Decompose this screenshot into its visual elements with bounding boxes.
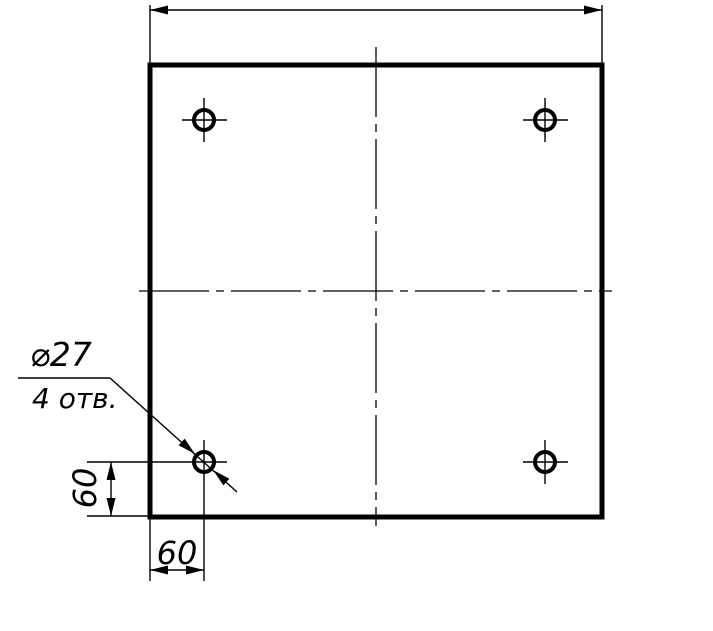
dimension-value-horizontal: 60 bbox=[157, 534, 198, 572]
drawing-canvas: ⌀27 4 отв. 60 60 bbox=[0, 0, 713, 631]
dimension-vertical-60: 60 bbox=[66, 462, 150, 516]
drawing-sheet: ⌀27 4 отв. 60 60 bbox=[0, 0, 713, 631]
dimension-arrow-up-icon bbox=[107, 462, 116, 480]
dimension-value-vertical: 60 bbox=[66, 468, 104, 509]
hole-top-right bbox=[523, 98, 568, 142]
callout-diameter-text: ⌀27 bbox=[30, 335, 92, 374]
dimension-horizontal-60: 60 bbox=[150, 517, 204, 581]
callout-count-text: 4 отв. bbox=[32, 382, 118, 415]
hole-bottom-right bbox=[523, 440, 568, 484]
hole-top-left bbox=[182, 98, 227, 142]
dimension-arrow-right-icon bbox=[584, 6, 602, 15]
dimension-arrow-left-icon bbox=[150, 6, 168, 15]
dimension-arrow-down-icon bbox=[107, 498, 116, 516]
